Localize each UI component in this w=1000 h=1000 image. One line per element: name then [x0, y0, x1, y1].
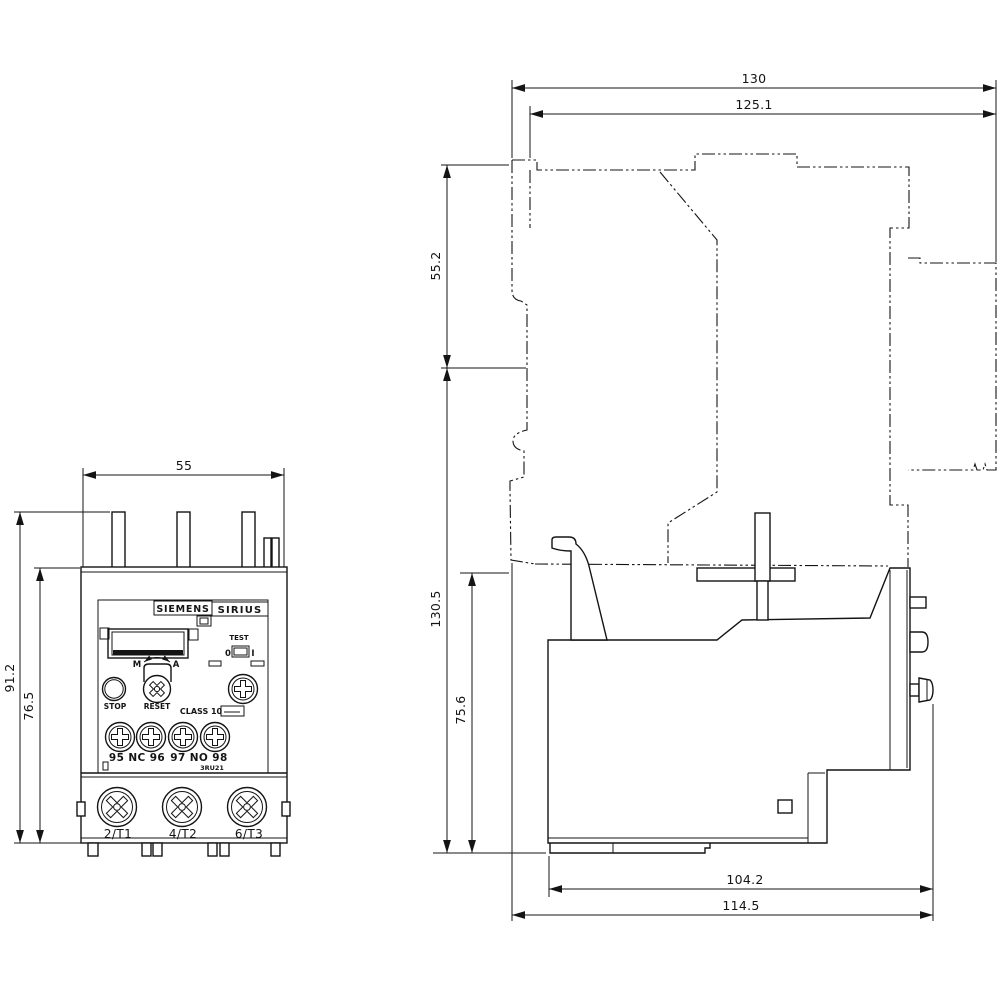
aux-nc-label: 95 NC 96: [109, 752, 165, 764]
dim-height-55-2: 55.2: [428, 165, 447, 368]
terminal-label-2t1: 2/T1: [104, 827, 132, 841]
dim-label-55-2: 55.2: [428, 251, 443, 280]
pin-guide-bar: [697, 568, 795, 581]
dim-label-91-2: 91.2: [2, 663, 17, 692]
mounting-hook: [552, 537, 607, 640]
dim-height-130-5: 130.5: [428, 368, 447, 853]
dim-width-55: 55: [83, 458, 284, 475]
dial-a-label: A: [173, 660, 180, 670]
side-clip-right: [282, 802, 290, 816]
mounting-feet: [88, 843, 280, 856]
dial-m-label: M: [133, 660, 141, 670]
dim-label-130: 130: [742, 71, 767, 86]
dim-label-130-5: 130.5: [428, 590, 443, 627]
dim-label-114-5: 114.5: [722, 898, 759, 913]
top-prongs: [112, 512, 279, 568]
dim-depth-114-5: 114.5: [512, 898, 933, 915]
terminal-label-4t2: 4/T2: [169, 827, 197, 841]
pivot-boss: [910, 632, 928, 652]
reset-knob[interactable]: RESET: [144, 676, 172, 712]
aux-no-label: 97 NO 98: [170, 752, 227, 764]
dim-label-104-2: 104.2: [726, 872, 763, 887]
drawing-canvas: 55 91.2 76.5: [0, 0, 1000, 1000]
test-label: TEST: [229, 634, 249, 642]
dim-height-91-2: 91.2: [2, 512, 20, 843]
side-clip-left: [77, 802, 85, 816]
test-i-label: I: [251, 649, 254, 659]
fixing-screw-head: [919, 678, 933, 702]
contactor-phantom-outline: [510, 154, 996, 567]
class-label: CLASS 10: [180, 707, 223, 716]
dim-label-75-6: 75.6: [453, 695, 468, 724]
model-label: 3RU21: [200, 764, 224, 772]
dim-label-76-5: 76.5: [21, 691, 36, 720]
base-strip: [550, 843, 710, 853]
latch-tab: [910, 597, 926, 608]
siemens-logo: SIEMENS: [156, 604, 209, 615]
technical-drawing: 55 91.2 76.5: [0, 0, 1000, 1000]
terminal-label-6t3: 6/T3: [235, 827, 263, 841]
front-view: 55 91.2 76.5: [2, 458, 290, 856]
side-view: 130 125.1 55.2 130.5 75.6: [428, 71, 996, 921]
dim-depth-104-2: 104.2: [549, 872, 933, 889]
dim-label-125-1: 125.1: [735, 97, 772, 112]
dim-height-75-6: 75.6: [453, 573, 472, 853]
reset-label: RESET: [144, 702, 171, 711]
dim-depth-130: 130: [512, 71, 996, 88]
dim-label-55: 55: [176, 458, 193, 473]
dim-height-76-5: 76.5: [21, 568, 40, 843]
plunger-pin-tip: [757, 581, 768, 620]
screw-shank: [910, 684, 919, 696]
stop-label: STOP: [104, 702, 127, 711]
dim-depth-125-1: 125.1: [530, 97, 996, 114]
sirius-logo: SIRIUS: [218, 605, 263, 616]
plunger-pin: [755, 513, 770, 581]
test-0-label: 0: [225, 649, 231, 659]
